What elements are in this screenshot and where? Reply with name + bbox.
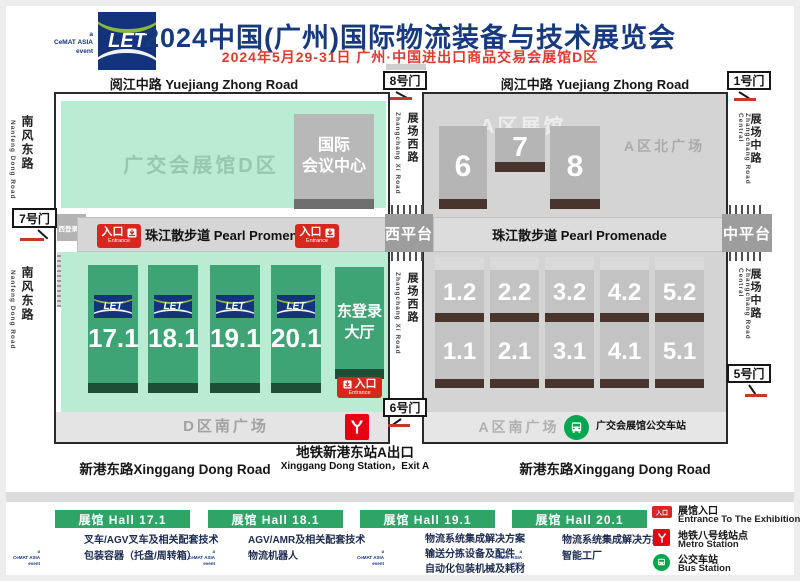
hall-base bbox=[271, 383, 321, 393]
legend-metro-en: Metro Station bbox=[678, 539, 739, 550]
gate-8: 8号门 bbox=[383, 71, 427, 90]
hall-18-1: LET 18.1 bbox=[148, 265, 198, 393]
hall-base bbox=[490, 379, 539, 388]
cemat-brand-text: aCeMAT ASIAevent bbox=[187, 549, 215, 567]
door-arrow-icon bbox=[127, 228, 137, 238]
hall-19-1: LET 19.1 bbox=[210, 265, 260, 393]
metro-icon bbox=[653, 529, 670, 546]
entrance-badge-2-en: Entrance bbox=[306, 239, 328, 245]
hall-18-1-number: 18.1 bbox=[148, 323, 198, 354]
a-south-square: A区南广场 广交会展馆公交车站 bbox=[424, 412, 726, 442]
hall-1-2: 1.2 bbox=[435, 257, 484, 313]
road-nanfeng-cn-upper: 南风东路 bbox=[19, 115, 36, 210]
gate-7: 7号门 bbox=[12, 208, 57, 228]
road-yuejiang-west: 阅江中路 Yuejiang Zhong Road bbox=[94, 74, 314, 93]
hall-20-1-number: 20.1 bbox=[271, 323, 321, 354]
gate-6-mark bbox=[388, 424, 410, 427]
road-xinggang-west: 新港东路Xinggang Dong Road bbox=[65, 458, 285, 478]
hall-6-number: 6 bbox=[439, 150, 487, 184]
pearl-promenade-west-label: 珠江散步道 Pearl Promenade bbox=[145, 225, 320, 244]
road-zhanchang-xi-cn-lower: 展场西路 bbox=[404, 272, 420, 362]
legend-entrance-en: Entrance To The Exhibition Hall bbox=[678, 514, 800, 525]
stair-hatch bbox=[391, 205, 425, 214]
gate-5: 5号门 bbox=[727, 364, 771, 383]
road-yuejiang-east: 阅江中路 Yuejiang Zhong Road bbox=[485, 74, 705, 93]
a-north-square-label: A区北广场 bbox=[624, 136, 724, 156]
hall-7: 7 bbox=[495, 128, 545, 172]
conference-center-line2: 会议中心 bbox=[302, 157, 366, 178]
legend-hall-18-1-title: 展馆 Hall 18.1 bbox=[208, 510, 343, 528]
hall-3-2: 3.2 bbox=[545, 257, 594, 313]
hall-7-number: 7 bbox=[495, 131, 545, 163]
cemat-brand-text: a CeMAT ASIA event bbox=[53, 31, 93, 56]
hall-separator bbox=[655, 313, 704, 322]
road-xinggang-east: 新港东路Xinggang Dong Road bbox=[505, 458, 725, 478]
gate-6: 6号门 bbox=[383, 398, 427, 417]
legend-bus-en: Bus Station bbox=[678, 563, 731, 574]
hall-4-1: 4.1 bbox=[600, 322, 649, 379]
pearl-promenade-east-label: 珠江散步道 Pearl Promenade bbox=[492, 225, 667, 244]
hall-17-1: LET 17.1 bbox=[88, 265, 138, 393]
hall-base bbox=[439, 199, 487, 209]
top-divider-mark bbox=[386, 64, 426, 70]
hall-base bbox=[655, 379, 704, 388]
legend-hall-19-1-title: 展馆 Hall 19.1 bbox=[360, 510, 495, 528]
bus-station-label: 广交会展馆公交车站 bbox=[596, 412, 686, 442]
legend-hall-20-1-desc: 物流系统集成解决方案 智能工厂 bbox=[562, 533, 662, 565]
hall-base bbox=[550, 199, 600, 209]
exhibition-map-page: a CeMAT ASIA event LET 2024中国(广州)国际物流装备与… bbox=[0, 0, 800, 581]
door-arrow-icon bbox=[325, 228, 335, 238]
hall-8-number: 8 bbox=[550, 150, 600, 184]
cemat-brand-text: aCeMAT ASIAevent bbox=[356, 549, 384, 567]
hall-base bbox=[88, 383, 138, 393]
hall-3-1: 3.1 bbox=[545, 322, 594, 379]
hall-base bbox=[495, 162, 545, 172]
hall-19-1-number: 19.1 bbox=[210, 323, 260, 354]
exhibition-entrance-icon: 入口 bbox=[652, 506, 672, 518]
hall-separator bbox=[545, 313, 594, 322]
cemat-brand-text: aCeMAT ASIAevent bbox=[12, 549, 40, 567]
bus-icon bbox=[564, 415, 589, 440]
west-platform: 西平台 bbox=[385, 214, 433, 252]
hall-5-1: 5.1 bbox=[655, 322, 704, 379]
let-logo: LET bbox=[94, 295, 132, 318]
legend-hall-20-1-title: 展馆 Hall 20.1 bbox=[512, 510, 647, 528]
d-south-square-label: D区南广场 bbox=[146, 412, 306, 442]
pearl-promenade-east: 珠江散步道 Pearl Promenade bbox=[433, 217, 726, 252]
hall-6: 6 bbox=[439, 126, 487, 209]
hall-1-1: 1.1 bbox=[435, 322, 484, 379]
hall-separator bbox=[490, 313, 539, 322]
east-entrance-cn: 入口 bbox=[355, 379, 377, 390]
cemat-brand-text: aCeMAT ASIAevent bbox=[494, 549, 522, 567]
east-entrance-badge: 入口 Entrance bbox=[337, 377, 382, 398]
entrance-badge-1-en: Entrance bbox=[108, 239, 130, 245]
middle-platform: 中平台 bbox=[722, 214, 772, 252]
hall-base bbox=[148, 383, 198, 393]
hall-base bbox=[545, 379, 594, 388]
gate-1-mark bbox=[734, 98, 756, 101]
stair-hatch bbox=[391, 252, 425, 261]
conference-center-base bbox=[294, 199, 374, 209]
entrance-badge-2: 入口 Entrance bbox=[295, 224, 339, 248]
let-logo: LET bbox=[277, 295, 315, 318]
hall-8: 8 bbox=[550, 126, 600, 209]
road-nanfeng-cn-lower: 南风东路 bbox=[19, 266, 36, 361]
brand-name: CeMAT ASIA bbox=[53, 39, 93, 47]
stair-hatch bbox=[729, 205, 763, 214]
hall-base bbox=[600, 379, 649, 388]
gate-8-mark bbox=[390, 97, 412, 100]
a-zone-building: A区展馆 6 7 8 A区北广场 珠江散步道 Pearl Promenade 1… bbox=[422, 92, 728, 444]
hall-separator bbox=[435, 313, 484, 322]
entrance-badge-2-cn: 入口 bbox=[300, 227, 322, 238]
conference-center: 国际 会议中心 bbox=[294, 114, 374, 199]
hall-5-2: 5.2 bbox=[655, 257, 704, 313]
hall-base bbox=[210, 383, 260, 393]
east-login-hall: 东登录 大厅 bbox=[335, 267, 384, 379]
brand-pre: a bbox=[53, 31, 93, 39]
legend-hall-18-1-desc: AGV/AMR及相关配套技术 物流机器人 bbox=[248, 533, 365, 565]
legend-hall-17-1-title: 展馆 Hall 17.1 bbox=[55, 510, 190, 528]
road-zhanchang-zhong-cn-upper: 展场中路 bbox=[747, 113, 763, 205]
d-zone-area-label: 广交会展馆D区 bbox=[101, 149, 301, 178]
hall-2-1: 2.1 bbox=[490, 322, 539, 379]
road-nanfeng-en-lower: Nanfeng Dong Road bbox=[9, 270, 16, 365]
d-south-square: D区南广场 bbox=[56, 412, 388, 442]
hall-20-1: LET 20.1 bbox=[271, 265, 321, 393]
entrance-badge-1-cn: 入口 bbox=[102, 227, 124, 238]
let-logo: LET bbox=[154, 295, 192, 318]
east-login-hall-line1: 东登录 bbox=[335, 301, 384, 322]
road-nanfeng-en-upper: Nanfeng Dong Road bbox=[9, 120, 16, 215]
bus-icon bbox=[653, 554, 670, 571]
metro-icon bbox=[345, 414, 369, 440]
gate-5-mark bbox=[745, 394, 767, 397]
road-zhanchang-xi-cn-upper: 展场西路 bbox=[404, 112, 420, 202]
conference-center-line1: 国际 bbox=[318, 136, 350, 157]
hall-base bbox=[435, 379, 484, 388]
east-login-hall-line2: 大厅 bbox=[335, 322, 384, 343]
gate-1: 1号门 bbox=[727, 71, 771, 90]
metro-exit-en: Xinggang Dong Station，Exit A bbox=[275, 457, 435, 472]
east-entrance-en: Entrance bbox=[348, 391, 370, 397]
hall-17-1-number: 17.1 bbox=[88, 323, 138, 354]
brand-post: event bbox=[53, 48, 93, 56]
hall-4-2: 4.2 bbox=[600, 257, 649, 313]
d-zone-building: 广交会展馆D区 国际 会议中心 西登录口 珠江散步道 Pearl Promena… bbox=[54, 92, 390, 444]
entrance-badge-1: 入口 Entrance bbox=[97, 224, 141, 248]
stair-hatch bbox=[729, 252, 763, 261]
door-arrow-icon bbox=[343, 380, 352, 389]
gate-7-mark bbox=[20, 238, 44, 241]
road-zhanchang-xi-en-upper: Zhangchang Xi Road bbox=[394, 112, 401, 202]
let-logo: LET bbox=[216, 295, 254, 318]
road-zhanchang-zhong-cn-lower: 展场中路 bbox=[747, 268, 763, 360]
legend-divider bbox=[6, 492, 794, 502]
road-zhanchang-xi-en-lower: Zhangchang Xi Road bbox=[394, 272, 401, 362]
hall-separator bbox=[600, 313, 649, 322]
hall-2-2: 2.2 bbox=[490, 257, 539, 313]
